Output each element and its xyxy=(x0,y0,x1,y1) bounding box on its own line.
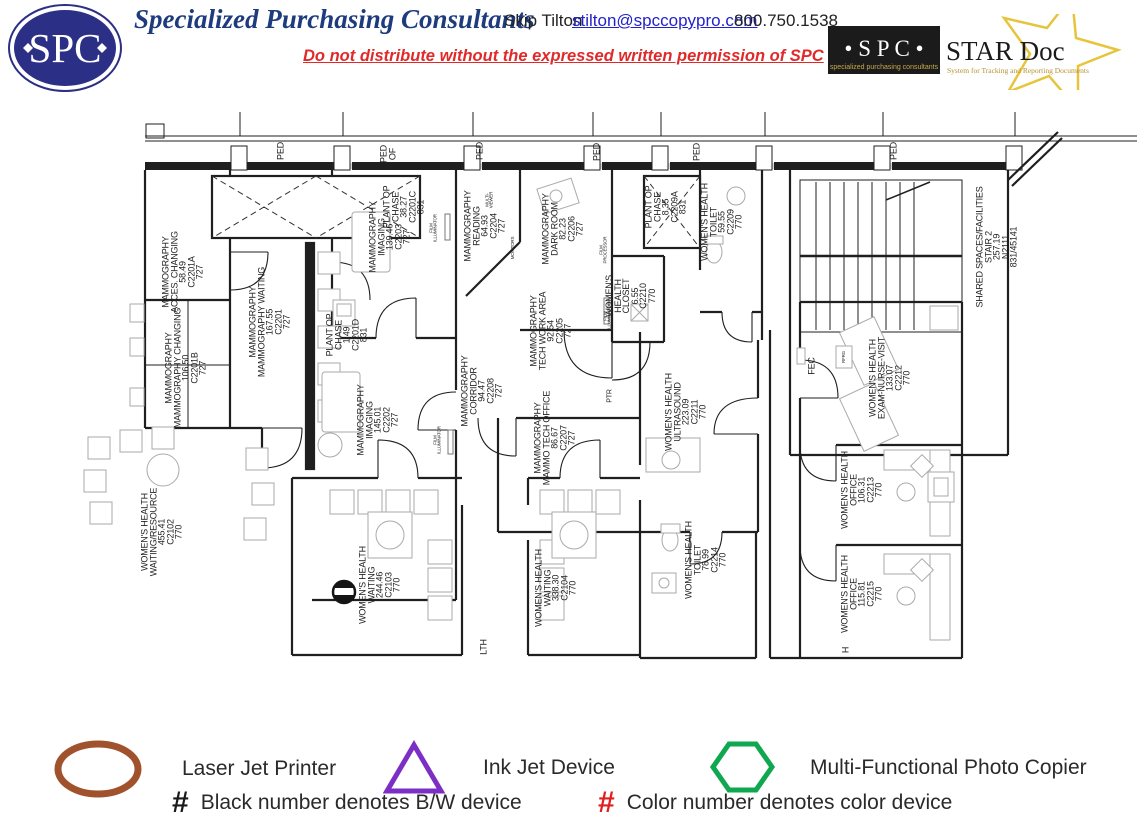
room-label: MAMMOGRAPHYCORRIDOR94.47C2208727 xyxy=(461,355,504,426)
room-label: WOMEN'S HEALTHOFFICE106.31C2213770 xyxy=(841,451,884,529)
page: SPC Specialized Purchasing Consultants S… xyxy=(0,0,1140,828)
legend-note-color-label: Color number denotes color device xyxy=(627,791,953,815)
corridor-lines xyxy=(145,112,1137,141)
room-label: MAMMOGRAPHYACCES. CHANGING58.49C2201A727 xyxy=(162,231,205,313)
legend-ink-jet: Ink Jet Device xyxy=(383,740,615,796)
room-label: WOMEN'SHEALTHCLOSET6.55C2210770 xyxy=(605,275,657,317)
room-label: MAMMOGRAPHYMAMMOGRAPHY WAITING167.55C220… xyxy=(249,267,292,377)
plan-annotation: PED xyxy=(277,142,286,160)
plan-annotation: PED xyxy=(476,142,485,160)
plan-annotation: PTR xyxy=(608,389,615,402)
legend-copier-label: Multi-Functional Photo Copier xyxy=(810,756,1087,780)
plan-annotation: LTH xyxy=(480,639,489,655)
plan-annotation: PED xyxy=(890,142,899,160)
plan-annotation: FILMPROCESSOR xyxy=(600,237,609,264)
plan-annotation: MULTI-VIEWER xyxy=(486,192,495,209)
plan-annotation: PED xyxy=(593,143,602,161)
plan-annotation: PED xyxy=(693,143,702,161)
legend-note-bw: # Black number denotes B/W device xyxy=(172,790,522,816)
plan-annotation: FEC xyxy=(808,357,817,374)
legend-note-color: # Color number denotes color device xyxy=(598,790,952,816)
room-label: WOMEN'S HEALTHOFFICE115.81C2215770 xyxy=(841,555,884,633)
legend-laser-jet-label: Laser Jet Printer xyxy=(182,757,336,781)
room-label: MAMMOGRAPHYMAMMO TECH OFFICE86.67C220772… xyxy=(534,391,577,485)
red-hash-icon: # xyxy=(598,790,615,816)
laser-jet-ellipse-icon xyxy=(52,740,144,798)
furniture xyxy=(84,178,958,640)
room-label: SHARED SPACES/FACILITIESSTAIR 2257.19N21… xyxy=(976,186,1019,307)
room-label: WOMEN'S HEALTHWAITING338.30C2104770 xyxy=(535,549,578,627)
plan-annotation: FILMILLUMINATOR xyxy=(430,214,439,242)
room-label: MAMMOGRAPHYTECH WORK AREA92.54C2205727 xyxy=(530,292,573,371)
room-label: WOMEN'S HEALTHTOILET78.99C2214770 xyxy=(685,521,728,599)
room-label: WOMEN'S HEALTHTOILET59.55C2209770 xyxy=(701,183,744,261)
legend-note-bw-label: Black number denotes B/W device xyxy=(201,791,522,815)
plan-annotation: H xyxy=(842,647,851,653)
room-label: PLANT OPCHASE8.35C2209A831 xyxy=(645,186,688,229)
plan-annotation: RFRG xyxy=(842,351,846,363)
room-label: WOMEN'S HEALTHULTRASOUND223.09C2211770 xyxy=(665,373,708,451)
floor-plan: MAMMOGRAPHYACCES. CHANGING58.49C2201A727… xyxy=(0,0,1140,828)
legend-ink-jet-label: Ink Jet Device xyxy=(483,756,615,780)
plan-annotation: FILMILLUMINATOR xyxy=(604,302,613,330)
column-symbol xyxy=(333,581,355,603)
room-label: WOMEN'S HEALTHEXAM-NURSE-VISIT133.07C221… xyxy=(869,337,912,419)
room-label: MAMMOGRAPHYIMAGING139.46C2203727 xyxy=(369,201,412,272)
room-label: PLANT OPCHASE1.49C2201D831 xyxy=(326,314,369,357)
room-label: WOMEN'S HEALTHWAITING244.46C2103770 xyxy=(359,546,402,624)
legend-copier: Multi-Functional Photo Copier xyxy=(710,740,1087,796)
room-label: WOMEN'S HEALTHWAITING/RESOURCE455.41C210… xyxy=(141,488,184,576)
room-label: MAMMOGRAPHYIMAGING145.01C2202727 xyxy=(357,384,400,455)
plan-annotation: PEDOF xyxy=(379,145,396,163)
room-label: MAMMOGRAPHYDARK ROOM82.23C2206727 xyxy=(542,193,585,264)
plan-annotation: FILMILLUMINATOR xyxy=(434,426,443,454)
ink-jet-triangle-icon xyxy=(383,740,445,796)
black-hash-icon: # xyxy=(172,790,189,816)
plan-annotation: MONITORS xyxy=(511,237,515,260)
copier-hexagon-icon xyxy=(710,740,776,796)
room-label: MAMMOGRAPHYMAMMOGRAPHY CHANGING106.50C22… xyxy=(165,308,208,428)
